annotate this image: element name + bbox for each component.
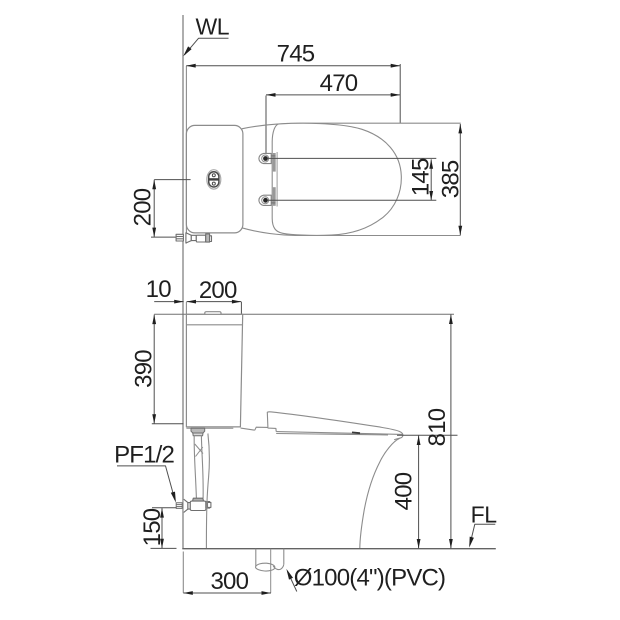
svg-text:385: 385	[438, 160, 465, 198]
svg-text:Ø100(4")(PVC): Ø100(4")(PVC)	[294, 565, 446, 592]
svg-text:390: 390	[131, 350, 158, 388]
svg-text:400: 400	[391, 472, 418, 510]
svg-text:470: 470	[320, 70, 358, 97]
svg-text:300: 300	[210, 568, 248, 595]
svg-text:810: 810	[424, 408, 451, 446]
svg-text:PF1/2: PF1/2	[114, 442, 174, 469]
svg-text:200: 200	[199, 277, 237, 304]
svg-text:145: 145	[408, 158, 435, 196]
svg-text:10: 10	[146, 276, 172, 303]
svg-text:745: 745	[277, 41, 315, 68]
svg-text:200: 200	[130, 188, 157, 226]
svg-text:150: 150	[139, 508, 166, 546]
svg-text:WL: WL	[196, 14, 230, 40]
